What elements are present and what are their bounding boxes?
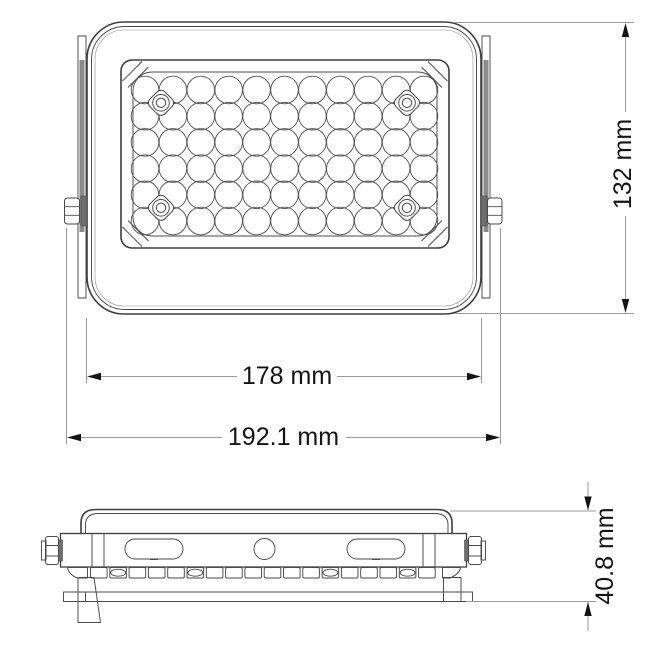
led-circle <box>243 155 271 183</box>
dim-outer-width: 192.1 mm <box>67 228 501 451</box>
led-circle <box>187 76 215 104</box>
led-circle <box>299 207 327 235</box>
arrowhead-bottom <box>622 299 629 313</box>
led-circle <box>215 207 243 235</box>
led-circle <box>271 181 299 209</box>
side-knob-left <box>42 537 63 565</box>
drawing-svg: 178 mm 192.1 mm 132 mm <box>0 0 668 668</box>
heatsink-fin <box>419 568 436 579</box>
mounting-screw <box>392 193 422 223</box>
led-circle <box>243 76 271 104</box>
led-panel-frame-inner <box>133 72 437 236</box>
heatsink-fin <box>264 568 281 579</box>
led-circle <box>187 181 215 209</box>
led-circle <box>327 129 355 157</box>
arrowhead-left <box>87 373 101 380</box>
led-circle <box>271 155 299 183</box>
technical-drawing-canvas: 178 mm 192.1 mm 132 mm <box>0 0 668 668</box>
heatsink-fin <box>361 568 378 579</box>
heatsink-fin <box>284 568 301 579</box>
front-view <box>65 22 503 314</box>
led-circle <box>271 129 299 157</box>
led-circle <box>354 207 382 235</box>
arrowhead-left <box>67 434 81 441</box>
led-circle <box>299 102 327 130</box>
led-circle <box>131 129 159 157</box>
body-innermost-line <box>95 30 473 306</box>
heatsink-fin <box>168 568 185 579</box>
led-circle <box>299 181 327 209</box>
led-circle <box>215 102 243 130</box>
heatsink-fins <box>91 568 436 579</box>
mounting-screw <box>146 88 176 118</box>
led-circle <box>187 129 215 157</box>
arrowhead-right <box>486 434 500 441</box>
heatsink-fin <box>91 568 108 579</box>
led-circle <box>299 129 327 157</box>
pivot-knob-right <box>481 196 502 226</box>
bracket-arm-left <box>78 36 86 298</box>
heatsink-fin <box>245 568 262 579</box>
led-circle <box>382 129 410 157</box>
dim-label-height: 132 mm <box>609 119 637 209</box>
led-circle <box>159 129 187 157</box>
side-knob-right <box>465 537 486 565</box>
bracket-arm-right <box>482 36 490 298</box>
dim-inner-width: 178 mm <box>87 318 482 390</box>
bracket-bar-dividers <box>86 592 444 602</box>
led-circle <box>215 155 243 183</box>
led-circle <box>159 155 187 183</box>
lens-profile-inner <box>86 514 449 535</box>
led-circle <box>327 207 355 235</box>
side-view <box>42 510 486 623</box>
body-outline <box>87 22 481 314</box>
led-circle <box>354 102 382 130</box>
led-circle <box>187 155 215 183</box>
led-circle <box>354 181 382 209</box>
led-circle <box>187 207 215 235</box>
dim-label-outer-width: 192.1 mm <box>228 423 339 451</box>
led-circle <box>271 76 299 104</box>
led-circle <box>354 155 382 183</box>
led-circle <box>215 76 243 104</box>
heatsink-fin <box>206 568 223 579</box>
body-inner-line <box>92 27 477 310</box>
led-circle <box>215 129 243 157</box>
led-circle <box>327 102 355 130</box>
led-circle <box>327 76 355 104</box>
arrowhead-top <box>622 23 629 37</box>
heatsink-fin <box>129 568 146 579</box>
led-circle <box>382 155 410 183</box>
led-panel-frame-outer <box>121 60 449 248</box>
heatsink-fin <box>341 568 358 579</box>
led-circle <box>410 155 438 183</box>
extension-lines <box>67 228 501 444</box>
led-circle <box>271 102 299 130</box>
led-circle <box>243 129 271 157</box>
led-circle <box>327 155 355 183</box>
mounting-screw <box>146 193 176 223</box>
dim-label-depth: 40.8 mm <box>591 507 619 604</box>
fin-oval <box>400 569 415 576</box>
heatsink-fin <box>226 568 243 579</box>
mounting-screw <box>392 88 422 118</box>
panel-corner-chamfers <box>123 62 448 247</box>
led-circle <box>215 181 243 209</box>
heatsink-fin <box>148 568 165 579</box>
led-circle <box>131 155 159 183</box>
led-circle <box>410 129 438 157</box>
bracket-leg-left <box>78 578 101 623</box>
led-circle <box>354 76 382 104</box>
fin-oval <box>111 569 126 576</box>
led-circle <box>299 76 327 104</box>
arrowhead-right <box>467 373 481 380</box>
pivot-knob-left <box>65 196 88 226</box>
led-array <box>131 76 438 235</box>
led-circle <box>271 207 299 235</box>
led-circle <box>187 102 215 130</box>
heatsink-fin <box>380 568 397 579</box>
fin-oval <box>323 569 338 576</box>
dim-label-inner-width: 178 mm <box>242 362 332 390</box>
led-circle <box>354 129 382 157</box>
bracket-bar <box>64 592 473 602</box>
led-circle <box>327 181 355 209</box>
bracket-leg-right <box>444 578 462 602</box>
fin-oval <box>188 569 203 576</box>
led-circle <box>243 102 271 130</box>
led-circle <box>299 155 327 183</box>
led-circle <box>243 207 271 235</box>
led-circle <box>243 181 271 209</box>
heatsink-fin <box>303 568 320 579</box>
